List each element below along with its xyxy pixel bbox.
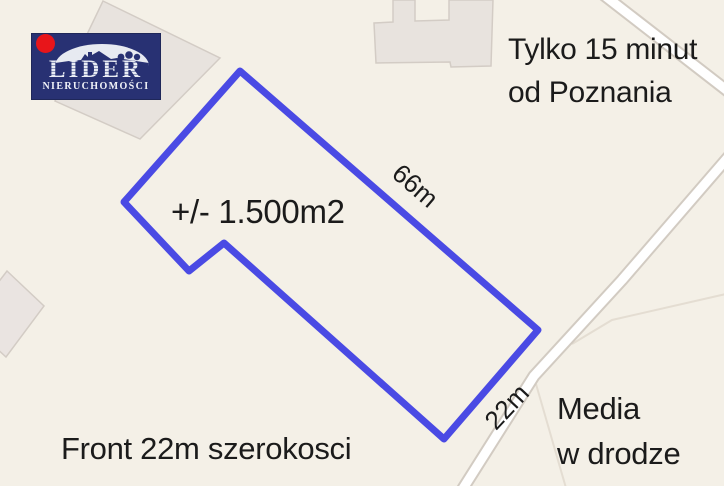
agency-logo: LIDER NIERUCHOMOŚCI — [31, 33, 161, 100]
annotation-bottom-right-line1: Media — [557, 386, 680, 431]
annotation-top-right-line1: Tylko 15 minut — [508, 28, 697, 71]
plot-outline — [124, 71, 538, 439]
annotation-bottom-right-line2: w drodze — [557, 431, 680, 476]
logo-subtitle-text: NIERUCHOMOŚCI — [31, 81, 161, 92]
annotation-top-right-line2: od Poznania — [508, 71, 697, 114]
map-canvas: 66m 22m Tylko 15 minut od Poznania +/- 1… — [0, 0, 724, 486]
building-left-edge — [0, 271, 44, 357]
plot-area-label: +/- 1.500m2 — [171, 193, 345, 231]
logo-brand-text: LIDER — [31, 57, 161, 82]
logo-red-dot-icon — [36, 34, 55, 53]
annotation-bottom-left: Front 22m szerokosci — [61, 431, 351, 467]
annotation-top-right: Tylko 15 minut od Poznania — [508, 28, 697, 114]
annotation-bottom-right: Media w drodze — [557, 386, 680, 476]
building-top-middle — [374, 0, 493, 67]
